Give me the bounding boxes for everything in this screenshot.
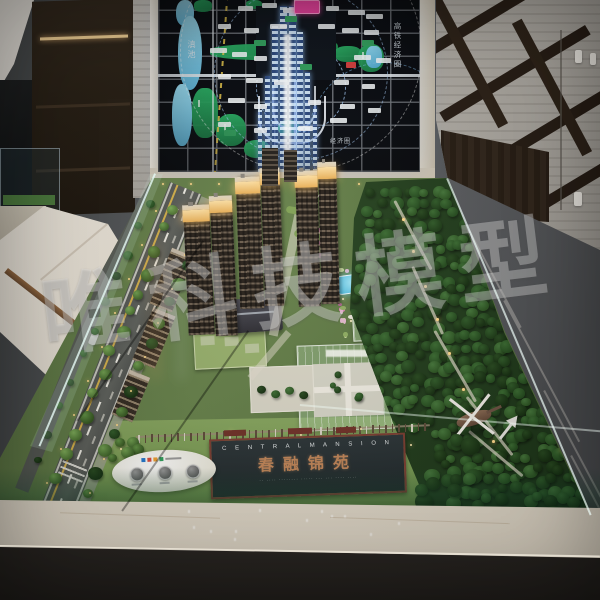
forest-tree [467, 297, 478, 307]
wall-map-display: 滇池高铁经济圈经济圈 [158, 0, 420, 172]
street-light [60, 448, 62, 450]
axis-light [310, 210, 312, 212]
axis-light [350, 320, 352, 322]
forest-tree [365, 261, 378, 272]
forest-tree [357, 252, 366, 260]
forest-tree [386, 268, 397, 278]
forest-tree [476, 318, 486, 327]
path-light [448, 352, 451, 355]
forest-tree [410, 384, 419, 392]
forest-tree [384, 302, 395, 312]
edge-tree [91, 328, 99, 335]
forest-tree [490, 406, 500, 415]
edge-tree [34, 457, 41, 464]
back-road-light [190, 183, 192, 185]
forest-tree [436, 245, 445, 253]
cabinet-lit-shelf [40, 34, 128, 40]
forest-tree [469, 331, 481, 341]
forest-tree [365, 188, 375, 197]
forest-tree [447, 207, 458, 217]
roof-unit [245, 343, 259, 353]
map-dim [158, 0, 420, 172]
back-road-light [246, 183, 248, 185]
forest-tree [419, 199, 428, 207]
ledge-reflection-sparkle [398, 522, 400, 525]
garden-planting [311, 254, 317, 258]
forest-tree [424, 416, 434, 425]
forest-tree [425, 386, 435, 395]
garden-planting [326, 226, 329, 231]
street-light [114, 312, 116, 314]
axis-light [326, 254, 328, 256]
forest-tree [538, 449, 552, 461]
forest-tree [417, 209, 429, 220]
garden-planting [327, 274, 333, 278]
courtyard-tree [334, 372, 342, 379]
sales-center-model-photo: 滇池高铁经济圈经济圈 C E N T R A L M A N S I O N春融… [0, 0, 600, 600]
ledge-reflection-sparkle [235, 530, 237, 533]
screen-frame-right [420, 0, 435, 176]
back-road-light [162, 183, 164, 185]
courtyard-tree [356, 393, 364, 400]
garden-planting [321, 215, 327, 219]
street-light [155, 210, 157, 212]
street-tree [103, 345, 115, 356]
forest-tree [486, 374, 496, 383]
screen-frame-left [150, 0, 158, 182]
street-tree [109, 429, 120, 439]
forest-tree [394, 283, 407, 295]
back-road-light [274, 183, 276, 185]
forest-tree [366, 323, 378, 334]
ledge-reflection-sparkle [321, 510, 323, 513]
forest-tree [377, 268, 387, 277]
back-road-light [330, 183, 332, 185]
street-light [144, 356, 146, 358]
ledge-reflection-sparkle [193, 526, 195, 529]
edge-tree [123, 251, 133, 260]
light-switch [574, 192, 582, 206]
forest-tree [375, 353, 387, 364]
forest-tree [379, 256, 388, 264]
garden-planting [321, 228, 326, 233]
forest-tree [427, 283, 439, 294]
plaza-tree [285, 387, 294, 395]
forest-tree [461, 316, 476, 329]
forest-tree [415, 350, 425, 359]
small-model-base [3, 195, 55, 205]
garden-planting [338, 268, 343, 272]
forest-tree [431, 261, 441, 270]
garden-planting [331, 296, 335, 300]
forest-tree [363, 288, 375, 299]
forest-tree [407, 395, 418, 405]
light-switch [590, 53, 596, 65]
ledge-reflection-sparkle [188, 510, 190, 513]
ledge-vein [60, 512, 220, 519]
path-light [402, 218, 405, 221]
garden-planting [320, 270, 325, 274]
forest-tree [495, 394, 509, 406]
back-road-light [358, 183, 360, 185]
forest-tree [362, 228, 373, 238]
roof-unit [200, 336, 214, 346]
path-light [412, 250, 415, 253]
ledge-reflection-sparkle [306, 519, 308, 522]
edge-tree [134, 222, 142, 229]
forest-tree [408, 423, 419, 433]
street-light [101, 346, 103, 348]
path-light [492, 440, 495, 443]
forest-tree [428, 219, 442, 231]
axis-light [334, 276, 336, 278]
garden-planting [325, 220, 328, 226]
garden-planting [340, 309, 344, 314]
forest-tree [520, 454, 529, 462]
forest-tree [419, 189, 428, 197]
street-light [198, 220, 200, 222]
garden-planting [343, 318, 346, 324]
ledge-reflection-sparkle [370, 533, 372, 536]
plaza-tree [271, 390, 280, 398]
forest-tree [412, 317, 424, 328]
street-tree [117, 326, 131, 338]
forest-tree [432, 234, 443, 244]
small-display-case [0, 148, 60, 214]
street-tree [69, 429, 82, 441]
street-light [128, 278, 130, 280]
forest-tree [474, 371, 485, 381]
forest-tree [429, 209, 440, 219]
street-light [130, 390, 132, 392]
garden-planting [343, 332, 348, 337]
forest-tree [377, 198, 388, 208]
garden-planting [340, 306, 346, 310]
street-tree [133, 290, 144, 300]
forest-tree [382, 218, 395, 230]
forest-tree [366, 299, 381, 312]
path-light [424, 285, 427, 288]
path-light [462, 388, 465, 391]
forest-tree [458, 262, 471, 274]
garden-planting [301, 193, 305, 199]
forest-tree [403, 252, 414, 262]
street-light [171, 288, 173, 290]
forest-tree [477, 300, 490, 311]
garden-planting [333, 231, 336, 236]
axis-light [318, 232, 320, 234]
forest-tree [456, 284, 465, 292]
forest-tree [407, 207, 417, 216]
path-light [436, 318, 439, 321]
forest-tree [389, 329, 401, 340]
cabinet-shelf [36, 102, 130, 108]
forest-tree [502, 367, 511, 375]
ledge-reflection-sparkle [234, 538, 236, 541]
forest-tree [373, 210, 382, 218]
street-light [141, 244, 143, 246]
forest-tree [401, 360, 415, 373]
forest-tree [471, 269, 481, 278]
forest-tree [418, 332, 428, 341]
garden-planting [299, 202, 305, 208]
garden-planting [325, 266, 331, 272]
light-switch [575, 50, 582, 63]
ledge-vein [330, 517, 510, 524]
plaza-tree [257, 386, 266, 394]
street-light [103, 458, 105, 460]
forest-tree [522, 430, 532, 439]
shelf-beam-vertical [428, 0, 508, 128]
back-road-light [218, 183, 220, 185]
forest-tree [373, 343, 383, 352]
forest-tree [438, 428, 451, 440]
wall-seam-v [560, 30, 562, 210]
ledge-reflection-sparkle [210, 530, 212, 533]
forest-tree [365, 219, 375, 228]
edge-tree [146, 200, 155, 208]
pavilion-ridge [236, 311, 274, 316]
forest-tree [452, 240, 464, 251]
forest-tree [389, 246, 400, 256]
floor-reflection-cool [178, 260, 184, 380]
forest-tree [410, 288, 419, 296]
garden-planting [345, 269, 349, 273]
street-light [73, 414, 75, 416]
ledge-reflection-sparkle [259, 509, 261, 512]
garden-planting [318, 194, 323, 198]
forest-tree [513, 388, 525, 399]
street-tree [167, 205, 178, 215]
street-tree [164, 297, 175, 307]
forest-tree [451, 441, 462, 451]
street-tree [116, 407, 127, 417]
forest-tree [350, 294, 360, 303]
forest-tree [478, 344, 489, 354]
street-light [87, 380, 89, 382]
forest-tree [361, 206, 373, 216]
plaza-tree [299, 391, 308, 399]
marble-vein [40, 221, 110, 280]
courtyard-tree [334, 386, 342, 393]
axis-light [342, 298, 344, 300]
back-road-light [302, 183, 304, 185]
forest-tree [461, 345, 470, 353]
forest-tree [400, 386, 411, 395]
